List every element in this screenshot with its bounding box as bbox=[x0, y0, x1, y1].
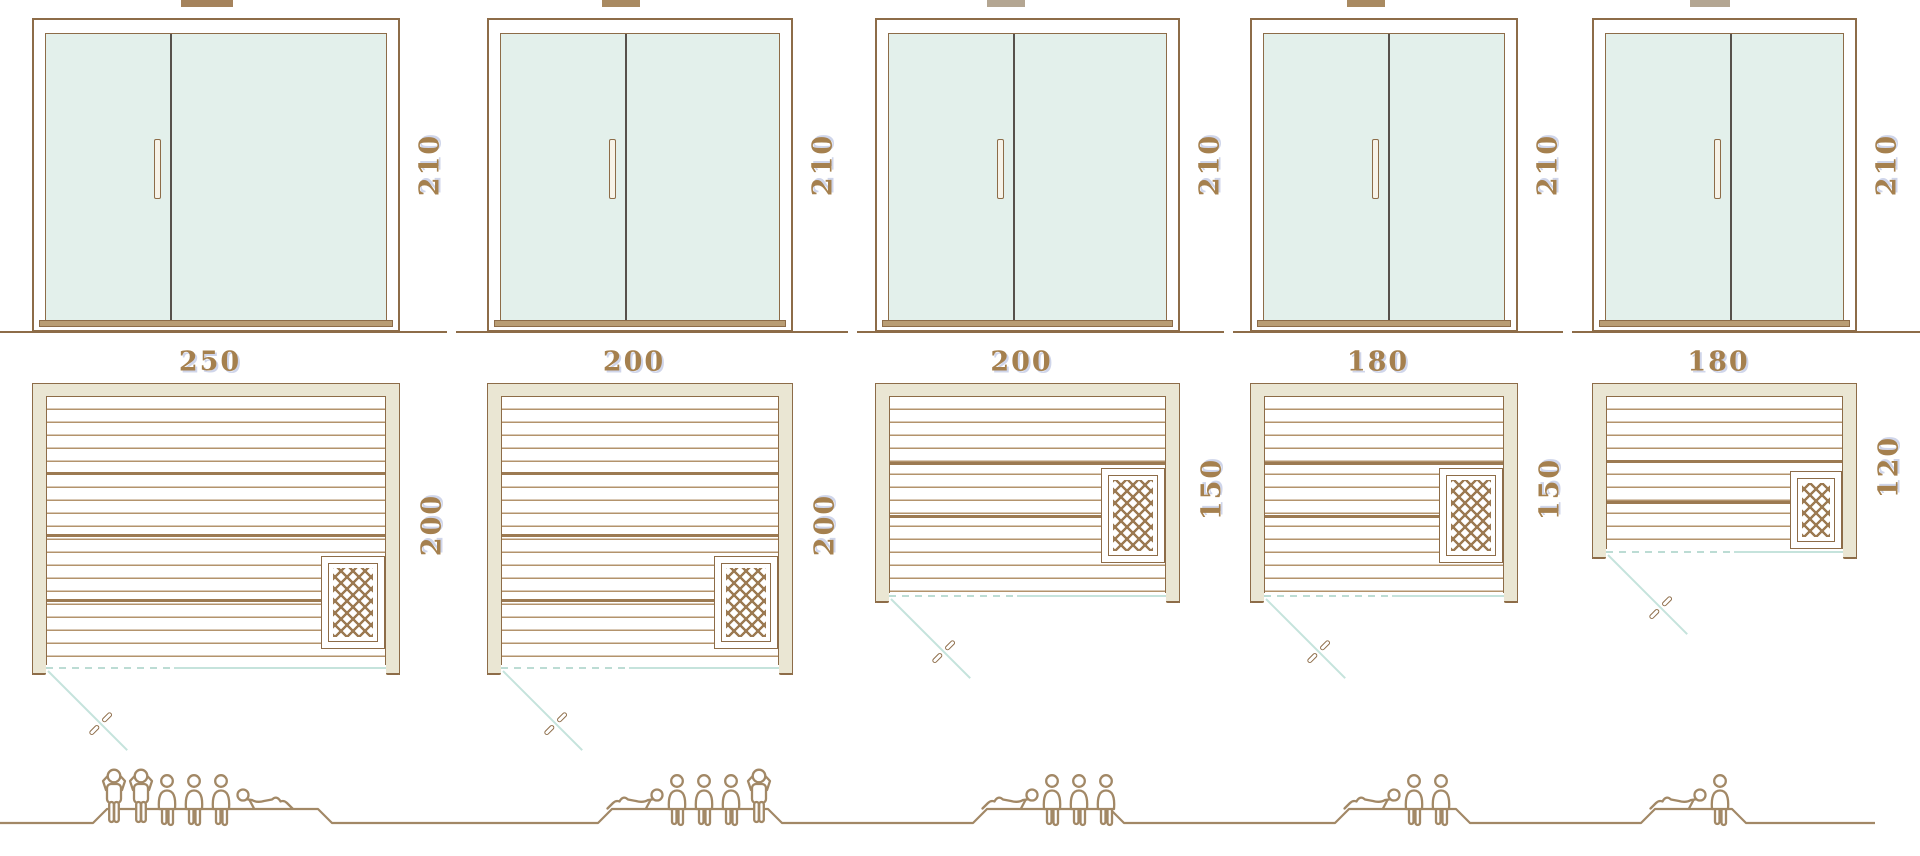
ground-bench-line bbox=[0, 809, 1875, 823]
door-opening-dashed-line bbox=[46, 667, 171, 669]
door-edge-line bbox=[170, 34, 172, 320]
door-sill bbox=[1257, 320, 1511, 327]
door-opening-dashed-line bbox=[1606, 551, 1731, 553]
door-swing-line bbox=[502, 670, 583, 751]
sauna-size-diagram: 2102502002102002002102001502101801502101… bbox=[0, 0, 1920, 856]
glass-front-wall-line bbox=[629, 667, 779, 669]
person-standing-icon bbox=[103, 770, 125, 822]
glass-front-wall-line bbox=[1017, 595, 1166, 597]
door-sill bbox=[39, 320, 393, 327]
door-handle bbox=[1372, 139, 1379, 199]
right-post-cap bbox=[1166, 601, 1180, 603]
width-dimension-label: 200 bbox=[990, 347, 1052, 378]
person-lying-icon bbox=[608, 790, 663, 809]
right-post-cap bbox=[1504, 601, 1518, 603]
top-crop-bar bbox=[1347, 0, 1385, 7]
bench-edge-line bbox=[1607, 460, 1842, 463]
bench-slats-area bbox=[46, 396, 386, 665]
plan-door-handle-icon bbox=[1648, 608, 1660, 620]
heater-bench-region bbox=[1101, 468, 1165, 563]
plan-door-handle-icon bbox=[101, 711, 113, 723]
door-handle bbox=[1714, 139, 1721, 199]
bench-edge-line bbox=[47, 472, 385, 475]
heater-bench-region bbox=[1439, 468, 1503, 563]
bench-slats-area bbox=[889, 396, 1166, 593]
person-sitting-icon bbox=[723, 775, 739, 825]
glass-front bbox=[888, 33, 1167, 321]
plan-door-handle-icon bbox=[88, 724, 100, 736]
plan-door-handle-icon bbox=[931, 652, 943, 664]
glass-front bbox=[500, 33, 780, 321]
person-sitting-icon bbox=[1712, 775, 1728, 825]
sauna-250x200-elevation bbox=[32, 18, 400, 332]
width-dimension-label: 250 bbox=[179, 347, 241, 378]
heater-grille-hatch bbox=[1451, 480, 1491, 551]
sauna-200x200-floor-plan bbox=[487, 383, 793, 675]
bench-edge-line bbox=[502, 534, 778, 537]
glass-front-wall-line bbox=[174, 667, 386, 669]
left-post-cap bbox=[1592, 557, 1606, 559]
depth-dimension-label: 200 bbox=[417, 494, 448, 556]
plan-door-handle-icon bbox=[1319, 639, 1331, 651]
plan-door-handle-icon bbox=[556, 711, 568, 723]
bench-slats-area bbox=[501, 396, 779, 665]
bench-slats-area bbox=[1264, 396, 1504, 593]
door-handle bbox=[997, 139, 1004, 199]
person-sitting-icon bbox=[1098, 775, 1114, 825]
right-post-cap bbox=[386, 673, 400, 675]
door-sill bbox=[1599, 320, 1850, 327]
glass-front bbox=[45, 33, 387, 321]
door-handle bbox=[154, 139, 161, 199]
height-dimension-label: 210 bbox=[808, 134, 839, 196]
person-standing-icon bbox=[748, 770, 770, 822]
sauna-180x120-elevation bbox=[1592, 18, 1857, 332]
person-sitting-icon bbox=[159, 775, 175, 825]
door-edge-line bbox=[1013, 34, 1015, 320]
depth-dimension-label: 150 bbox=[1197, 458, 1228, 520]
person-lying-flipped-icon bbox=[238, 790, 293, 809]
person-standing-icon bbox=[130, 770, 152, 822]
person-sitting-icon bbox=[1433, 775, 1449, 825]
height-dimension-label: 210 bbox=[1872, 134, 1903, 196]
top-crop-bar bbox=[987, 0, 1025, 7]
door-edge-line bbox=[1730, 34, 1732, 320]
person-sitting-icon bbox=[213, 775, 229, 825]
bench-edge-line bbox=[47, 534, 385, 537]
person-lying-icon bbox=[1345, 790, 1400, 809]
door-swing-line bbox=[890, 598, 971, 679]
heater-bench-region bbox=[714, 556, 778, 649]
sauna-250x200-floor-plan bbox=[32, 383, 400, 675]
right-post-cap bbox=[779, 673, 793, 675]
heater-bench-region bbox=[321, 556, 385, 649]
bench-slats-area bbox=[1606, 396, 1843, 549]
heater-grille-hatch bbox=[726, 568, 766, 637]
person-sitting-icon bbox=[186, 775, 202, 825]
person-sitting-icon bbox=[1406, 775, 1422, 825]
heater-grille-hatch bbox=[1802, 483, 1830, 537]
person-sitting-icon bbox=[669, 775, 685, 825]
sauna-180x150-elevation bbox=[1250, 18, 1518, 332]
heater-grille-hatch bbox=[333, 568, 373, 637]
door-opening-dashed-line bbox=[501, 667, 626, 669]
plan-door-handle-icon bbox=[944, 639, 956, 651]
plan-door-handle-icon bbox=[1306, 652, 1318, 664]
floor-line bbox=[0, 331, 447, 333]
glass-front-wall-line bbox=[1734, 551, 1843, 553]
top-crop-bar bbox=[602, 0, 640, 7]
door-swing-line bbox=[1265, 598, 1346, 679]
heater-outline bbox=[721, 563, 771, 642]
person-sitting-icon bbox=[1071, 775, 1087, 825]
sauna-200x200-elevation bbox=[487, 18, 793, 332]
door-swing-line bbox=[47, 670, 128, 751]
right-post-cap bbox=[1843, 557, 1857, 559]
top-crop-bar bbox=[181, 0, 233, 7]
plan-door-handle-icon bbox=[1661, 595, 1673, 607]
person-lying-icon bbox=[1651, 790, 1706, 809]
width-dimension-label: 180 bbox=[1347, 347, 1409, 378]
glass-front bbox=[1263, 33, 1505, 321]
heater-outline bbox=[1797, 478, 1835, 542]
heater-outline bbox=[1108, 475, 1158, 556]
depth-dimension-label: 200 bbox=[810, 494, 841, 556]
door-edge-line bbox=[1388, 34, 1390, 320]
person-sitting-icon bbox=[696, 775, 712, 825]
bench-edge-line bbox=[1265, 462, 1503, 465]
left-post-cap bbox=[32, 673, 46, 675]
left-post-cap bbox=[487, 673, 501, 675]
height-dimension-label: 210 bbox=[415, 134, 446, 196]
plan-door-handle-icon bbox=[543, 724, 555, 736]
capacity-pictogram-row bbox=[0, 752, 1920, 856]
floor-line bbox=[1572, 331, 1920, 333]
door-sill bbox=[494, 320, 786, 327]
width-dimension-label: 180 bbox=[1687, 347, 1749, 378]
door-opening-dashed-line bbox=[889, 595, 1014, 597]
depth-dimension-label: 120 bbox=[1874, 436, 1905, 498]
heater-outline bbox=[328, 563, 378, 642]
width-dimension-label: 200 bbox=[603, 347, 665, 378]
left-post-cap bbox=[875, 601, 889, 603]
top-crop-bar bbox=[1690, 0, 1730, 7]
heater-outline bbox=[1446, 475, 1496, 556]
person-sitting-icon bbox=[1044, 775, 1060, 825]
glass-front-wall-line bbox=[1392, 595, 1504, 597]
sauna-180x120-floor-plan bbox=[1592, 383, 1857, 559]
glass-front bbox=[1605, 33, 1844, 321]
sauna-200x150-floor-plan bbox=[875, 383, 1180, 603]
heater-grille-hatch bbox=[1113, 480, 1153, 551]
person-lying-icon bbox=[983, 790, 1038, 809]
floor-line bbox=[857, 331, 1224, 333]
bench-edge-line bbox=[890, 462, 1165, 465]
floor-line bbox=[456, 331, 848, 333]
door-edge-line bbox=[625, 34, 627, 320]
left-post-cap bbox=[1250, 601, 1264, 603]
sauna-200x150-elevation bbox=[875, 18, 1180, 332]
sauna-180x150-floor-plan bbox=[1250, 383, 1518, 603]
height-dimension-label: 210 bbox=[1533, 134, 1564, 196]
heater-bench-region bbox=[1790, 471, 1842, 549]
depth-dimension-label: 150 bbox=[1535, 458, 1566, 520]
bench-edge-line bbox=[502, 472, 778, 475]
height-dimension-label: 210 bbox=[1195, 134, 1226, 196]
floor-line bbox=[1233, 331, 1563, 333]
door-opening-dashed-line bbox=[1264, 595, 1389, 597]
door-sill bbox=[882, 320, 1173, 327]
door-handle bbox=[609, 139, 616, 199]
door-swing-line bbox=[1607, 554, 1688, 635]
